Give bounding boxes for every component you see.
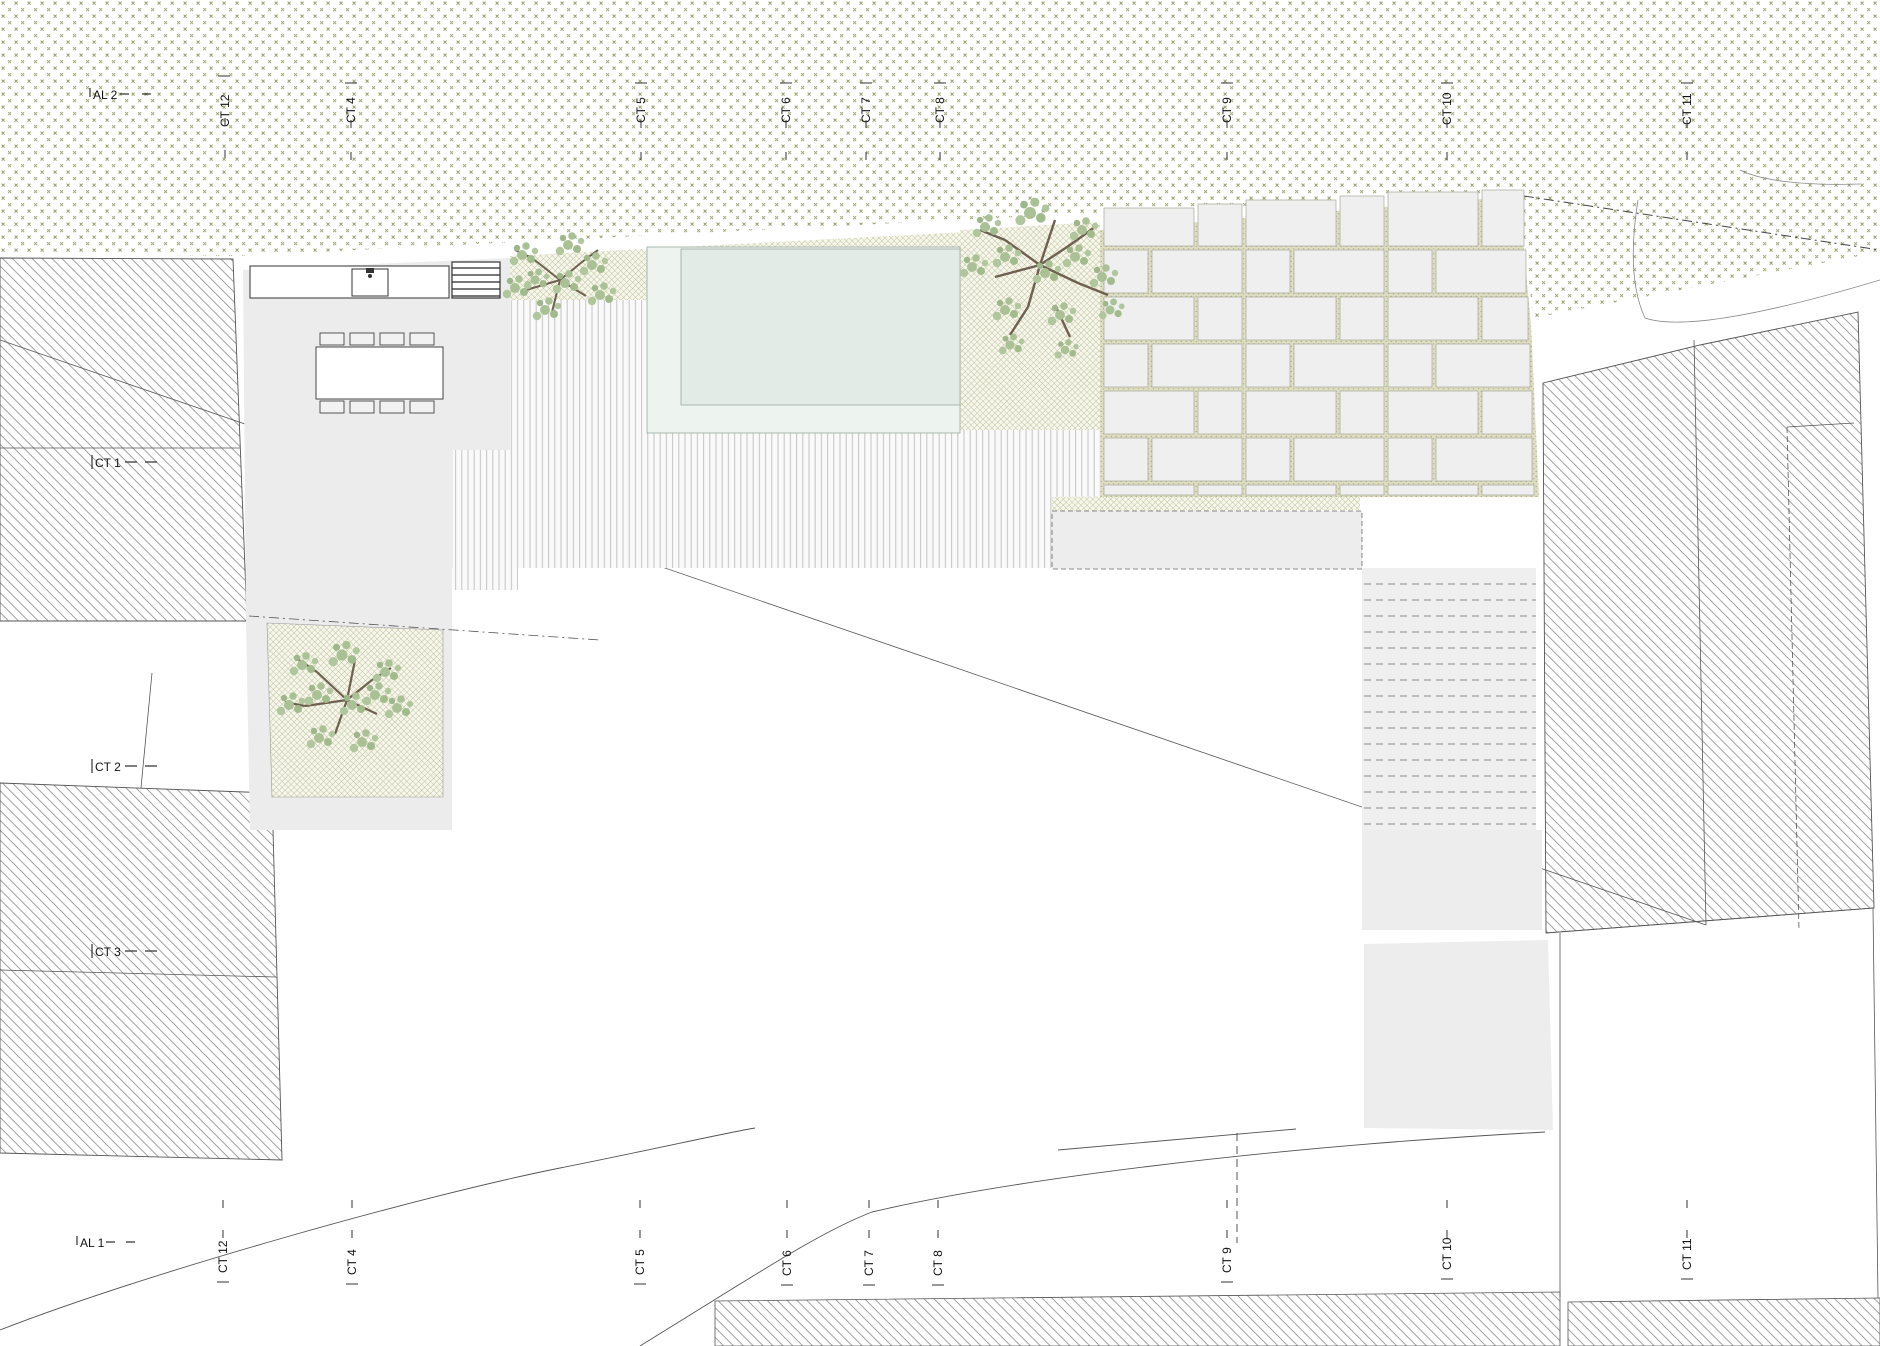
svg-text:CT 9: CT 9 <box>1220 97 1234 123</box>
svg-text:CT 7: CT 7 <box>862 1250 876 1276</box>
svg-text:CT 2: CT 2 <box>95 760 121 774</box>
svg-text:CT 6: CT 6 <box>779 97 793 123</box>
svg-text:AL 1: AL 1 <box>80 1236 105 1250</box>
svg-text:CT 8: CT 8 <box>933 97 947 123</box>
svg-text:CT 6: CT 6 <box>780 1250 794 1276</box>
svg-text:CT 9: CT 9 <box>1220 1247 1234 1273</box>
svg-text:CT 7: CT 7 <box>859 97 873 123</box>
svg-text:CT 5: CT 5 <box>633 1249 647 1275</box>
svg-text:CT 4: CT 4 <box>345 1249 359 1275</box>
svg-text:CT 3: CT 3 <box>95 945 121 959</box>
svg-text:AL 2: AL 2 <box>93 88 118 102</box>
svg-text:CT 12: CT 12 <box>216 1240 230 1273</box>
svg-text:CT 4: CT 4 <box>344 97 358 123</box>
svg-text:CT 11: CT 11 <box>1680 1238 1694 1270</box>
svg-text:CT 8: CT 8 <box>931 1250 945 1276</box>
svg-text:CT 10: CT 10 <box>1440 1237 1454 1270</box>
svg-text:CT 5: CT 5 <box>634 97 648 123</box>
svg-text:CT 1: CT 1 <box>95 456 121 470</box>
